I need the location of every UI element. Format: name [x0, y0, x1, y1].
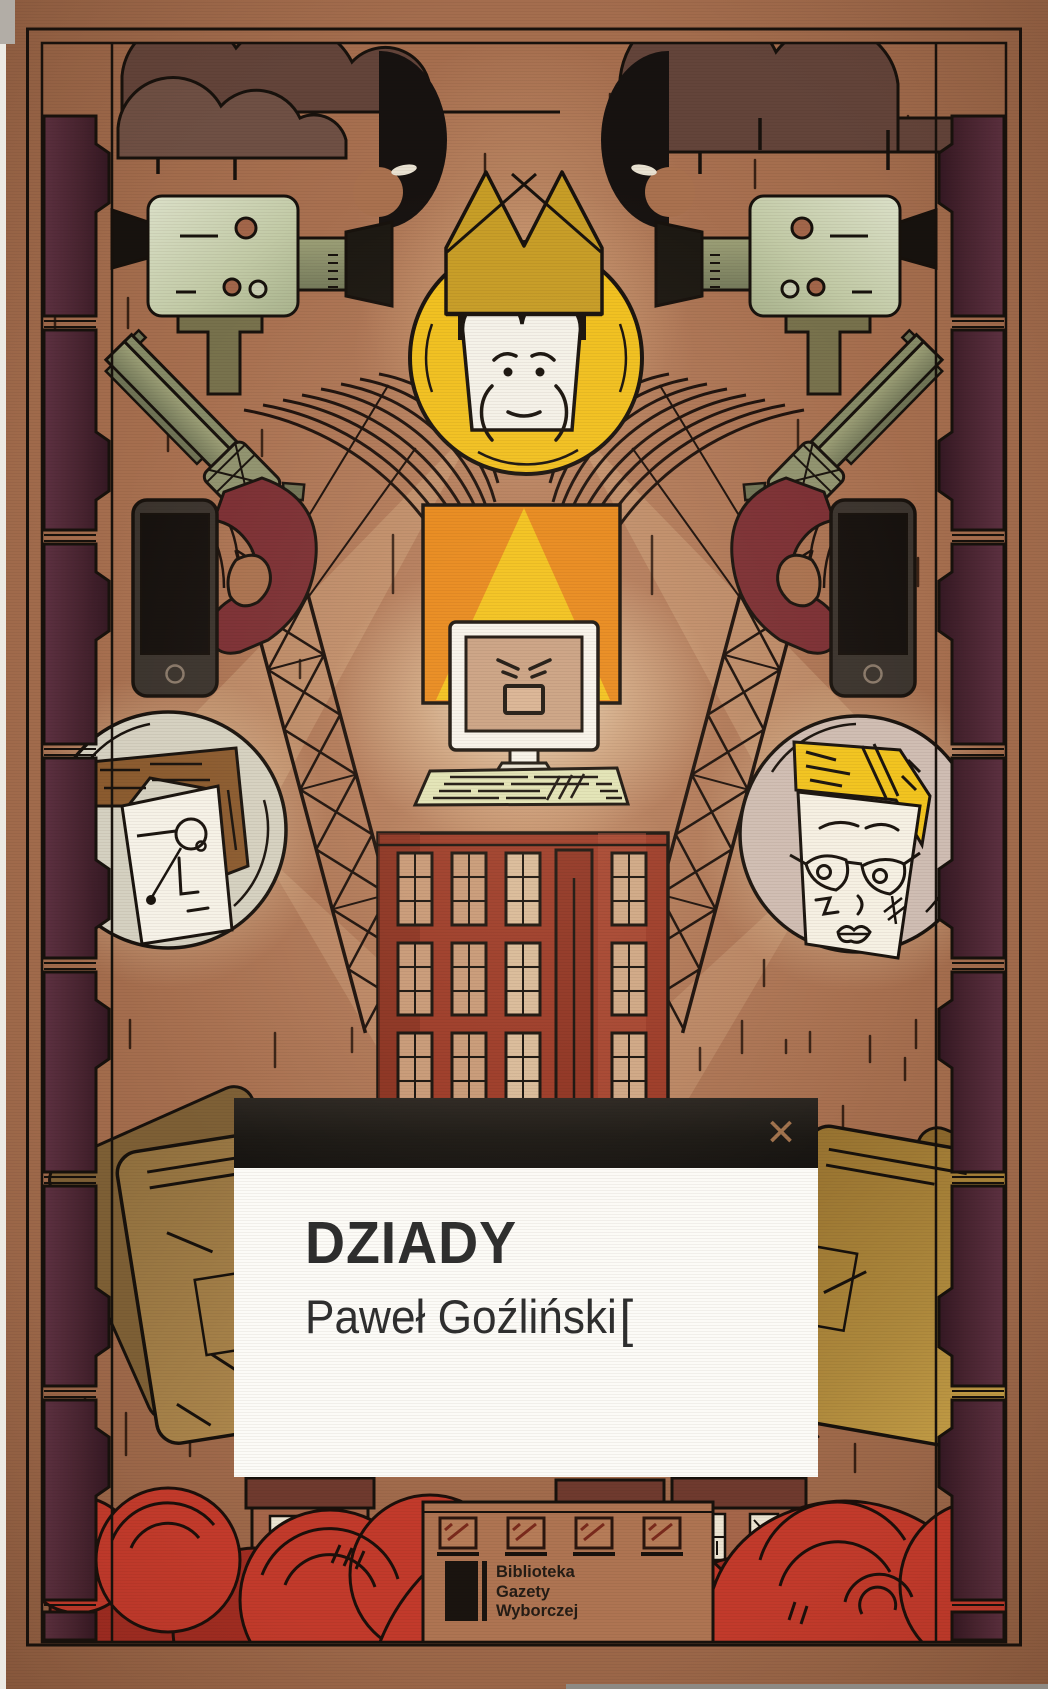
publisher-logo-square — [445, 1561, 478, 1621]
book-title: DZIADY — [305, 1214, 787, 1273]
book-author: Paweł Goźliński — [305, 1292, 617, 1341]
office-building — [378, 833, 668, 1105]
smartphone-icon — [831, 500, 915, 696]
dialog-titlebar: ✕ — [234, 1098, 818, 1168]
publisher-line-2: Gazety — [496, 1582, 578, 1602]
publisher-logo-bar — [482, 1561, 487, 1621]
smartphone-icon — [133, 500, 217, 696]
camera-lens-hood — [346, 222, 392, 306]
book-cover: Biblioteka Gazety Wyborczej ✕ DZIADY Paw… — [0, 0, 1048, 1689]
scan-edge-left — [0, 0, 6, 1689]
book-author-row: Paweł Goźliński [ — [305, 1289, 787, 1344]
portrait-face — [122, 786, 232, 944]
scan-edge-corner — [0, 0, 15, 44]
scan-edge-bottom — [566, 1684, 1048, 1689]
camera-lens-barrel — [298, 238, 346, 290]
keyboard-icon — [415, 768, 628, 805]
publisher-line-1: Biblioteka — [496, 1562, 578, 1582]
dialog-window: DZIADY Paweł Goźliński [ — [234, 1168, 818, 1477]
publisher-logo: Biblioteka Gazety Wyborczej — [445, 1561, 581, 1621]
shouting-mouth — [505, 686, 543, 713]
monocle — [176, 819, 206, 849]
close-icon[interactable]: ✕ — [758, 1110, 804, 1156]
text-cursor-icon: [ — [620, 1292, 634, 1347]
publisher-line-3: Wyborczej — [496, 1601, 578, 1621]
